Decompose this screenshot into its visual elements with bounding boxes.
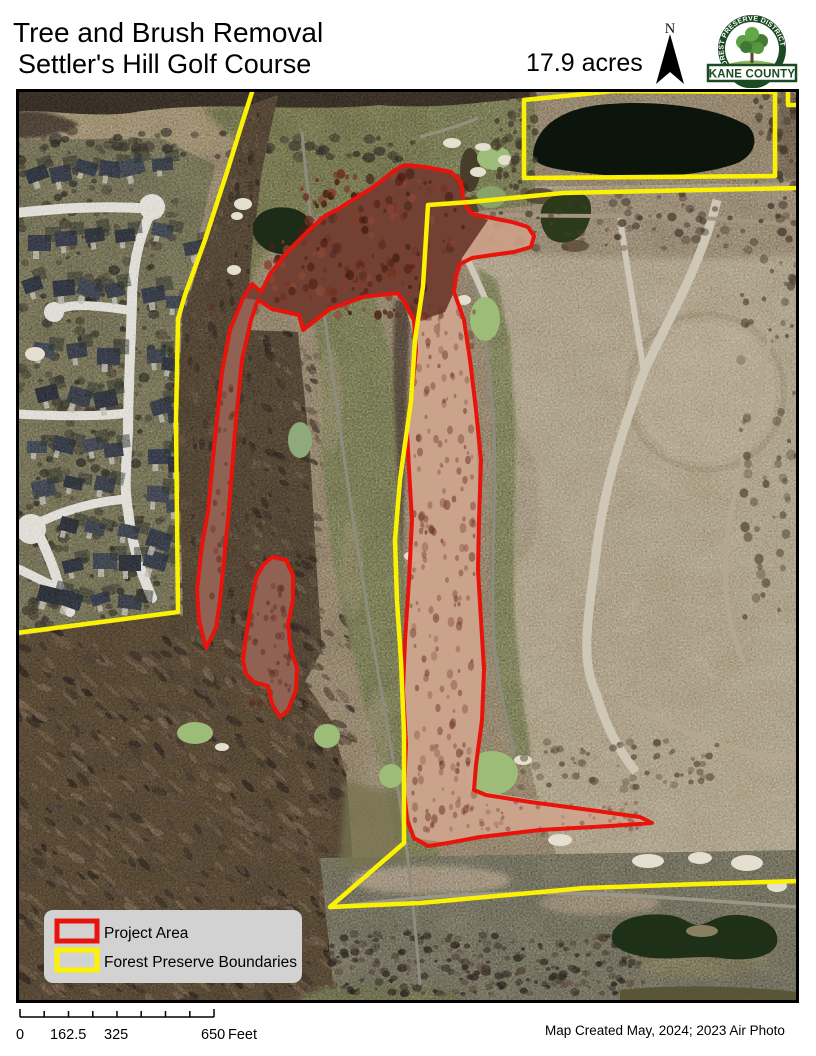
svg-text:325: 325 — [104, 1027, 128, 1043]
svg-text:0: 0 — [16, 1027, 24, 1043]
svg-text:KANE COUNTY: KANE COUNTY — [709, 69, 796, 81]
svg-text:N: N — [665, 21, 676, 37]
svg-text:Feet: Feet — [228, 1027, 257, 1043]
svg-text:Project Area: Project Area — [104, 925, 189, 942]
svg-text:Forest Preserve Boundaries: Forest Preserve Boundaries — [104, 954, 297, 971]
svg-text:650: 650 — [201, 1027, 225, 1043]
svg-text:162.5: 162.5 — [50, 1027, 86, 1043]
